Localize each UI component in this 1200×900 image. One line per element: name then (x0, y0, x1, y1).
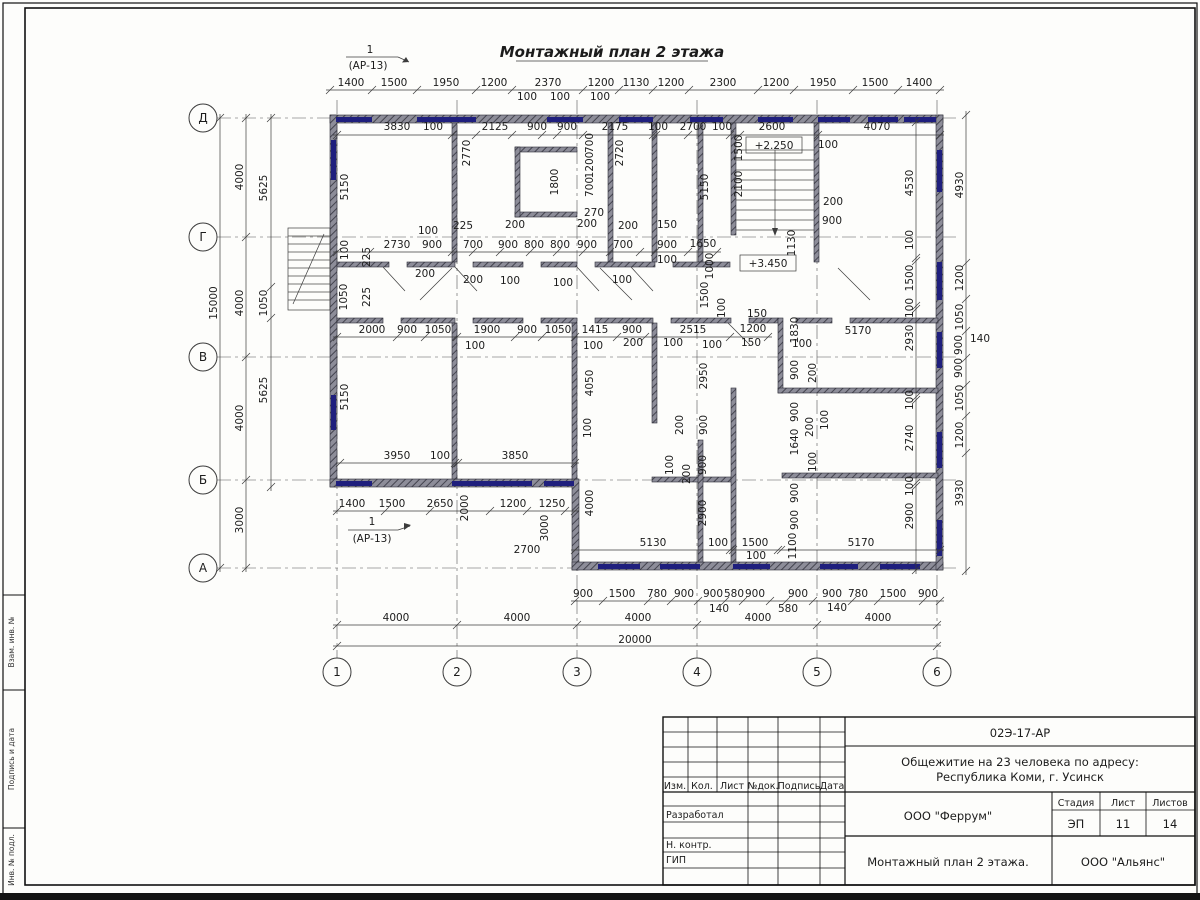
dim-label: 100 (664, 455, 676, 475)
dim-label: 2730 (384, 239, 411, 251)
rev-col-data: Дата (820, 781, 845, 792)
dim-label: 580 (778, 603, 798, 615)
dim-label: 200 (505, 219, 525, 231)
section-number: 1 (369, 516, 376, 528)
dim-label: 2000 (459, 495, 471, 522)
role-nkontr: Н. контр. (666, 840, 712, 851)
dim-label: 100 (746, 550, 766, 562)
dim-label: 4000 (745, 612, 772, 624)
dim-label: 900 (698, 415, 710, 435)
dim-label: 100 (663, 337, 683, 349)
dim-label: 900 (745, 588, 765, 600)
axis-col-label: 4 (693, 665, 701, 679)
sheets-total: 14 (1163, 817, 1178, 831)
dim-label: 900 (557, 121, 577, 133)
drawing-title-cell: Монтажный план 2 этажа. (867, 855, 1029, 869)
dim-label: 1500 (379, 498, 406, 510)
dim-label: 100 (818, 139, 838, 151)
axis-row-label: В (199, 350, 207, 364)
dim-label: 4000 (625, 612, 652, 624)
dim-label: 1050 (545, 324, 572, 336)
axis-row-label: Д (198, 111, 207, 125)
dim-label: 100 (517, 91, 537, 103)
dim-label: 780 (647, 588, 667, 600)
dim-label: 700 (463, 239, 483, 251)
dim-label: 1830 (789, 317, 801, 344)
dim-label: 100 (418, 225, 438, 237)
dim-label: 900 (622, 324, 642, 336)
dim-label: 1650 (690, 238, 717, 250)
sheets-label: Листов (1152, 798, 1188, 809)
dim-label: 1200 (954, 422, 966, 449)
dim-label: 20000 (618, 634, 651, 646)
dim-label: 1900 (474, 324, 501, 336)
dim-label: 4050 (584, 370, 596, 397)
dim-label: 225 (453, 220, 473, 232)
dim-label: 100 (716, 298, 728, 318)
dim-label: 1415 (582, 324, 609, 336)
dim-label: 100 (819, 410, 831, 430)
dim-label: 2125 (482, 121, 509, 133)
section-mark-top: 1 (АР-13) (346, 44, 409, 72)
dim-label: 100 (904, 230, 916, 250)
role-gip: ГИП (666, 855, 686, 866)
dim-label: 100 (590, 91, 610, 103)
dim-label: 4070 (864, 121, 891, 133)
dim-label: 900 (657, 239, 677, 251)
dim-label: 2300 (710, 77, 737, 89)
dim-label: 100 (702, 339, 722, 351)
dim-label: 1200 (763, 77, 790, 89)
dim-label: 1200 (584, 152, 596, 179)
dim-label: 200 (807, 363, 819, 383)
dim-label: 100 (708, 537, 728, 549)
dim-label: 3950 (384, 450, 411, 462)
dim-label: 5150 (339, 174, 351, 201)
dim-label: 1050 (425, 324, 452, 336)
section-sheet-ref: (АР-13) (349, 60, 388, 72)
doc-number: 02Э-17-АР (990, 726, 1050, 740)
dim-label: 200 (618, 220, 638, 232)
dim-label: 2100 (733, 171, 745, 198)
dim-label: 900 (822, 588, 842, 600)
stair-external-west (288, 228, 330, 310)
dim-label: 900 (577, 239, 597, 251)
stair-main (736, 150, 814, 236)
dimension-labels: 1400150019501200237012001130120023001200… (208, 77, 990, 646)
dim-label: 1500 (862, 77, 889, 89)
dim-label: 1200 (658, 77, 685, 89)
dim-label: 225 (361, 287, 373, 307)
title-block: Изм. Кол. Лист №док. Подпись Дата Разраб… (663, 717, 1195, 885)
floor-plan-svg: Взам. инв. № Подпись и дата Инв. № подл.… (0, 0, 1200, 900)
dim-label: 900 (918, 588, 938, 600)
dim-label: 1050 (954, 304, 966, 331)
dim-label: 100 (550, 91, 570, 103)
dim-label: 4000 (865, 612, 892, 624)
dim-label: 4000 (383, 612, 410, 624)
section-arrow-icon (402, 57, 409, 63)
rev-col-kol: Кол. (691, 781, 713, 792)
dim-label: 1950 (433, 77, 460, 89)
dim-label: 2720 (614, 140, 626, 167)
dim-label: 140 (827, 602, 847, 614)
dim-label: 4000 (234, 290, 246, 317)
elevation-mark-1: +2.250 (746, 137, 802, 153)
dim-label: 2740 (904, 425, 916, 452)
dim-label: 900 (674, 588, 694, 600)
section-number: 1 (367, 44, 374, 56)
dim-label: 100 (712, 121, 732, 133)
dim-label: 100 (904, 390, 916, 410)
dim-label: 5625 (258, 175, 270, 202)
dim-label: 1500 (699, 282, 711, 309)
dim-label: 1500 (609, 588, 636, 600)
section-mark-bottom: 1 (АР-13) (348, 516, 411, 545)
dim-label: 200 (674, 415, 686, 435)
dim-label: 2770 (461, 140, 473, 167)
dim-label: 900 (822, 215, 842, 227)
dim-label: 3000 (234, 507, 246, 534)
elevation-value: +3.450 (749, 258, 788, 270)
dim-label: 1400 (338, 77, 365, 89)
dim-label: 100 (648, 121, 668, 133)
dim-label: 15000 (208, 286, 220, 319)
frame-label-vzam: Взам. инв. № (7, 616, 16, 667)
sheet-label: Лист (1111, 798, 1136, 809)
dim-label: 1200 (588, 77, 615, 89)
dim-label: 4530 (904, 170, 916, 197)
dim-label: 100 (583, 340, 603, 352)
dim-label: 1800 (549, 169, 561, 196)
axis-col-label: 3 (573, 665, 581, 679)
dim-label: 5170 (845, 325, 872, 337)
dim-label: 100 (807, 452, 819, 472)
dim-label: 150 (747, 308, 767, 320)
dim-label: 1050 (954, 385, 966, 412)
rev-col-list: Лист (720, 781, 745, 792)
dim-label: 100 (553, 277, 573, 289)
dim-label: 200 (823, 196, 843, 208)
dim-label: 150 (657, 219, 677, 231)
dim-label: 900 (789, 510, 801, 530)
dim-label: 900 (953, 335, 965, 355)
dim-label: 700 (584, 133, 596, 153)
dim-label: 100 (423, 121, 443, 133)
dim-label: 2900 (697, 500, 709, 527)
dim-label: 1200 (481, 77, 508, 89)
dim-label: 900 (789, 402, 801, 422)
rev-col-izm: Изм. (664, 781, 686, 792)
dim-label: 900 (788, 588, 808, 600)
dim-label: 580 (724, 588, 744, 600)
dim-label: 2900 (904, 503, 916, 530)
dim-label: 1200 (740, 323, 767, 335)
dim-label: 1050 (338, 284, 350, 311)
dim-label: 700 (613, 239, 633, 251)
dim-label: 900 (573, 588, 593, 600)
dim-label: 3930 (954, 480, 966, 507)
project-name-line1: Общежитие на 23 человека по адресу: (901, 755, 1139, 769)
dim-label: 100 (500, 275, 520, 287)
designer-company: ООО "Феррум" (904, 809, 992, 823)
axis-col-label: 5 (813, 665, 821, 679)
dim-label: 5150 (699, 174, 711, 201)
axis-row-label: А (199, 561, 208, 575)
scan-edge-bar (0, 893, 1200, 900)
dim-label: 5150 (339, 384, 351, 411)
elevation-mark-2: +3.450 (740, 255, 796, 271)
dim-label: 140 (709, 603, 729, 615)
dim-label: 3000 (539, 515, 551, 542)
dim-label: 100 (904, 298, 916, 318)
role-razrabotal: Разработал (666, 810, 724, 821)
dim-label: 200 (623, 337, 643, 349)
dim-label: 900 (789, 483, 801, 503)
dim-label: 100 (465, 340, 485, 352)
dim-label: 900 (498, 239, 518, 251)
frame-label-podpis: Подпись и дата (7, 728, 16, 790)
dim-label: 140 (970, 333, 990, 345)
sheet-number: 11 (1116, 817, 1131, 831)
dim-label: 1200 (954, 265, 966, 292)
dim-label: 2700 (680, 121, 707, 133)
stage-value: ЭП (1068, 817, 1085, 831)
dim-label: 200 (681, 464, 693, 484)
dim-label: 900 (517, 324, 537, 336)
dim-label: 1500 (381, 77, 408, 89)
dim-label: 900 (703, 588, 723, 600)
dim-label: 1950 (810, 77, 837, 89)
page-title: Монтажный план 2 этажа (500, 43, 724, 61)
dim-label: 900 (397, 324, 417, 336)
dim-label: 2600 (759, 121, 786, 133)
dim-label: 1500 (733, 135, 745, 162)
dim-label: 100 (657, 254, 677, 266)
drawing-title-group: Монтажный план 2 этажа (500, 43, 724, 61)
dim-label: 100 (904, 476, 916, 496)
dim-label: 4000 (234, 405, 246, 432)
dim-label: 2515 (680, 324, 707, 336)
dim-label: 100 (430, 450, 450, 462)
dim-label: 900 (527, 121, 547, 133)
dim-label: 200 (415, 268, 435, 280)
dim-label: 780 (848, 588, 868, 600)
dim-label: 900 (422, 239, 442, 251)
dim-label: 800 (524, 239, 544, 251)
project-name-line2: Республика Коми, г. Усинск (936, 770, 1104, 784)
axis-col-label: 1 (333, 665, 341, 679)
dim-label: 800 (550, 239, 570, 251)
dim-label: 1500 (904, 265, 916, 292)
dim-label: 4000 (234, 164, 246, 191)
axis-col-label: 6 (933, 665, 941, 679)
dim-label: 1130 (786, 230, 798, 257)
dim-label: 2950 (698, 363, 710, 390)
dim-label: 1640 (789, 429, 801, 456)
dim-label: 1500 (880, 588, 907, 600)
contractor-company: ООО "Альянс" (1081, 855, 1165, 869)
dim-label: 3850 (502, 450, 529, 462)
dim-label: 4930 (954, 172, 966, 199)
frame-label-inv: Инв. № подл. (7, 834, 16, 886)
dim-label: 100 (612, 274, 632, 286)
elevation-value: +2.250 (755, 140, 794, 152)
dim-label: 700 (584, 177, 596, 197)
dim-label: 150 (741, 337, 761, 349)
rev-col-podpis: Подпись (778, 781, 821, 792)
dim-label: 2930 (904, 325, 916, 352)
dim-label: 1500 (742, 537, 769, 549)
drawing-sheet: Взам. инв. № Подпись и дата Инв. № подл.… (0, 0, 1200, 900)
dim-label: 100 (339, 240, 351, 260)
dim-label: 200 (804, 417, 816, 437)
dim-label: 2175 (602, 121, 629, 133)
dim-label: 900 (953, 358, 965, 378)
section-arrow-icon (404, 523, 411, 530)
axis-row-label: Б (199, 473, 207, 487)
dim-label: 1100 (787, 533, 799, 560)
dim-label: 225 (361, 247, 373, 267)
dim-label: 2650 (427, 498, 454, 510)
rev-col-dok: №док. (747, 781, 778, 792)
dim-label: 3830 (384, 121, 411, 133)
dim-label: 4000 (504, 612, 531, 624)
dim-label: 900 (697, 455, 709, 475)
dim-label: 1400 (906, 77, 933, 89)
dim-label: 200 (577, 218, 597, 230)
dim-label: 1000 (704, 253, 716, 280)
dim-label: 4000 (584, 490, 596, 517)
dim-label: 5130 (640, 537, 667, 549)
dim-label: 1400 (339, 498, 366, 510)
dim-label: 1200 (500, 498, 527, 510)
stage-label: Стадия (1058, 798, 1094, 809)
dim-label: 100 (582, 418, 594, 438)
dim-label: 2370 (535, 77, 562, 89)
section-sheet-ref: (АР-13) (353, 533, 392, 545)
dim-label: 5625 (258, 377, 270, 404)
axis-col-label: 2 (453, 665, 461, 679)
dim-label: 2000 (359, 324, 386, 336)
dim-label: 900 (789, 360, 801, 380)
axis-row-label: Г (199, 230, 206, 244)
dim-label: 200 (463, 274, 483, 286)
stair-direction-arrow-icon (772, 228, 778, 236)
dim-label: 2700 (514, 544, 541, 556)
dim-label: 1050 (258, 290, 270, 317)
dim-label: 1130 (623, 77, 650, 89)
dim-label: 1250 (539, 498, 566, 510)
dim-label: 5170 (848, 537, 875, 549)
